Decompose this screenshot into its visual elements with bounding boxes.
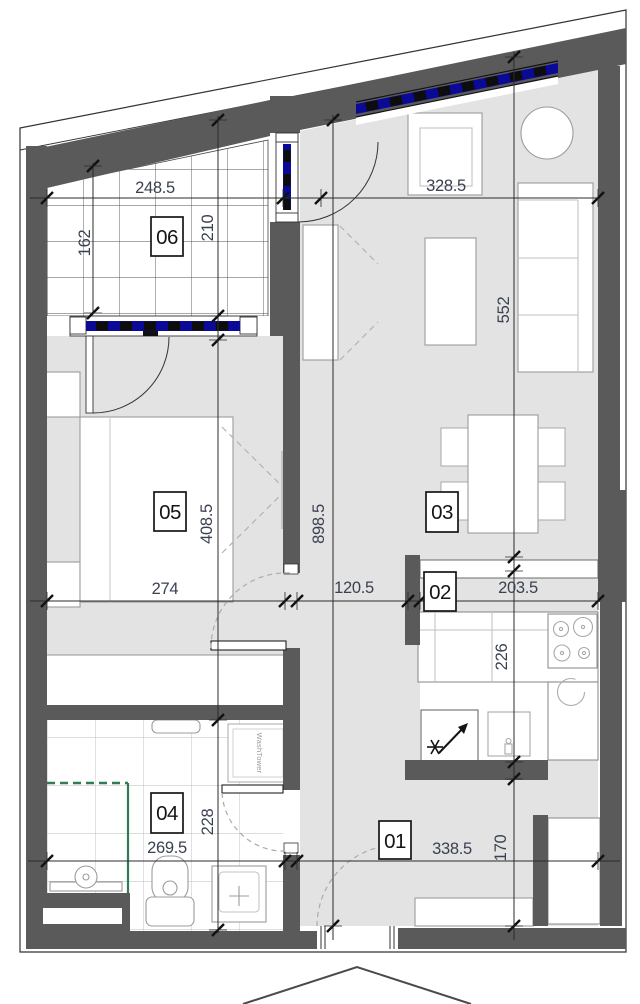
svg-text:05: 05 (159, 501, 181, 524)
dim-bedroom-depth: 408.5 (198, 504, 216, 544)
bedroom-door-leaf (211, 641, 286, 650)
wall-left (26, 146, 47, 949)
floor-plan-page: 248.5 162 210 328.5 552 898.5 274 408.5 … (0, 0, 640, 1004)
wall-shaft (533, 815, 548, 926)
dim-bath-depth: 228 (199, 809, 217, 836)
dining-table (468, 415, 538, 533)
sink-unit (488, 712, 530, 756)
svg-text:01: 01 (384, 830, 406, 853)
wall-right-mid (598, 490, 626, 602)
wall-kitchen-bottom (405, 760, 548, 780)
coffee-table (425, 238, 476, 345)
nightstand (45, 372, 80, 417)
washbasin-drain (83, 874, 89, 880)
room-label-02: 02 (424, 572, 456, 611)
room-label-03: 03 (426, 492, 458, 532)
dim-bedroom-width: 274 (152, 580, 179, 598)
wall-bedroom-bath (26, 705, 300, 720)
bathroom-door-leaf (222, 785, 283, 793)
shoe-cabinet (415, 898, 533, 926)
wardrobe (45, 655, 290, 708)
dim-kitchen-depth: 226 (493, 644, 511, 671)
door-handle-mark (143, 331, 158, 336)
svg-text:06: 06 (156, 226, 178, 249)
wall-niche (43, 908, 122, 924)
frame-cap (276, 133, 298, 142)
shaft (548, 818, 600, 924)
dim-terrace-right: 210 (199, 215, 217, 242)
sofa (518, 183, 593, 372)
svg-text:03: 03 (431, 501, 453, 524)
dim-kitchen-width: 203.5 (498, 579, 538, 597)
svg-text:02: 02 (429, 581, 451, 604)
frame-cap (70, 317, 86, 334)
kitchen-counter-right (548, 682, 598, 760)
dim-entry-depth: 170 (492, 835, 510, 862)
dim-terrace-width: 248.5 (135, 179, 175, 197)
dim-living-width: 328.5 (426, 177, 466, 195)
toilet-drain (163, 881, 177, 895)
washtower-label: WashTower (255, 733, 264, 774)
wall-right-upper (598, 66, 620, 490)
room-label-06: 06 (151, 217, 183, 256)
svg-text:04: 04 (156, 802, 178, 825)
fridge (421, 710, 478, 761)
wall-bottom-left (26, 931, 317, 949)
dim-apartment-length: 898.5 (310, 504, 328, 544)
toilet-cistern (146, 897, 194, 926)
room-label-01: 01 (379, 821, 411, 859)
nightstand (45, 562, 80, 607)
room-label-04: 04 (151, 793, 183, 833)
wall-right-lower (600, 602, 622, 926)
dim-living-depth: 552 (495, 297, 513, 324)
floor-plan-drawing: 248.5 162 210 328.5 552 898.5 274 408.5 … (0, 0, 640, 1004)
towel-radiator (152, 720, 200, 733)
dim-bath-width: 269.5 (147, 839, 187, 857)
dim-entry-width: 338.5 (432, 840, 472, 858)
balcony-door-leaf (86, 336, 93, 413)
round-side-table (521, 107, 573, 159)
door-jamb (284, 843, 298, 853)
dim-hall-width: 120.5 (334, 579, 374, 597)
wall-terrace-right-bottom (270, 222, 300, 336)
frame-cap (240, 317, 257, 334)
frame-cap (276, 213, 298, 222)
wall-bedroom-hall (283, 335, 300, 573)
cooktop (548, 614, 597, 668)
wall-bottom-right (398, 928, 626, 949)
wall-kitchen-stub (405, 555, 420, 645)
dim-terrace-depth: 162 (76, 230, 94, 257)
room-label-05: 05 (154, 492, 186, 531)
